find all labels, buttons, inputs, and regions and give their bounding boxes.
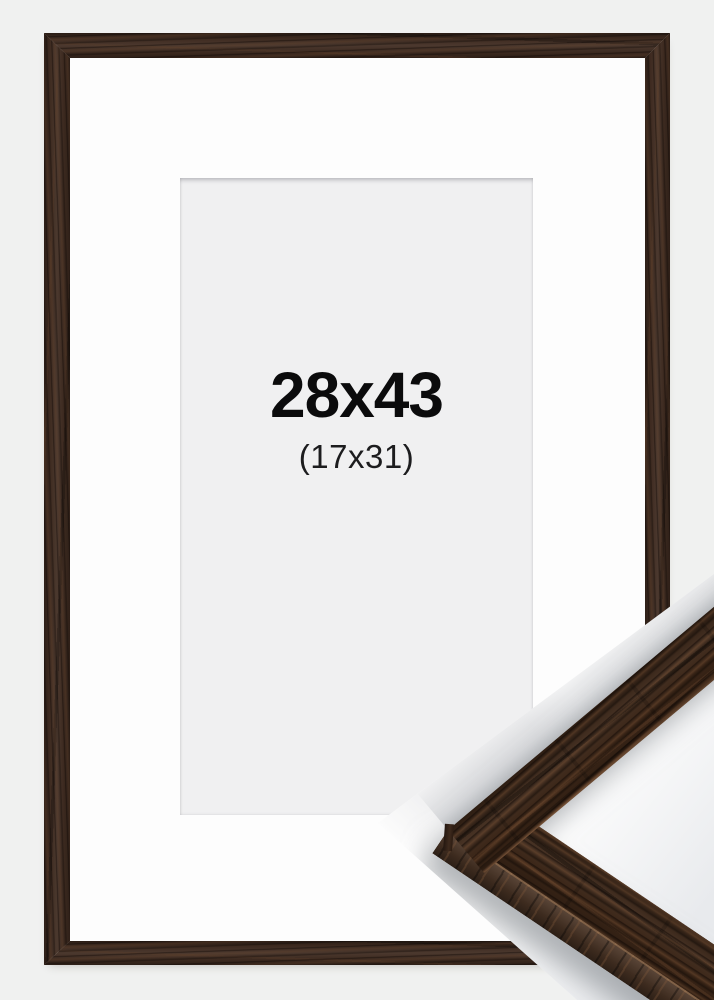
frame-wood-top-bar <box>44 33 670 58</box>
chevron-miter-tip <box>443 824 454 852</box>
frame-size-text: 28x43 <box>180 363 533 427</box>
frame-wood-left-bar <box>44 33 70 965</box>
frame-opening: 28x43 (17x31) <box>180 178 533 815</box>
size-label: 28x43 (17x31) <box>180 363 533 473</box>
product-photo: 28x43 (17x31) <box>0 0 714 1000</box>
matted-size-text: (17x31) <box>180 440 533 473</box>
